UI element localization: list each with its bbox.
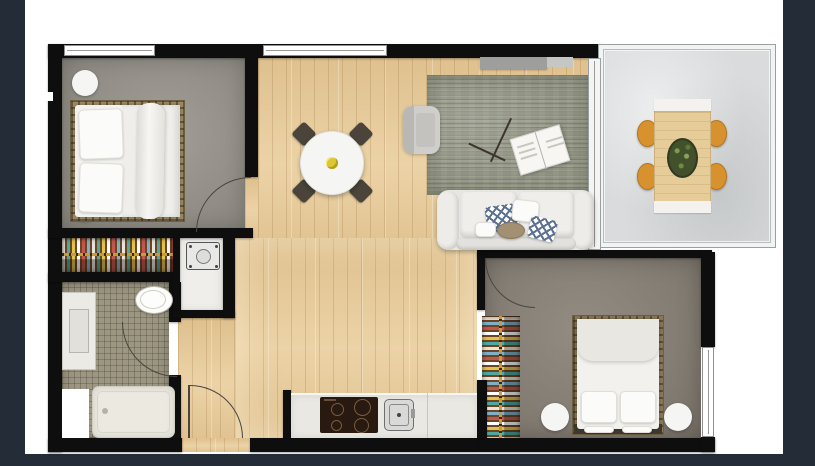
magazine-text-line [517,142,534,149]
wall-bedroom2-west-upper [477,252,485,310]
floor-plan [0,0,815,466]
bathtub-drain [102,408,108,414]
vanity-sink [69,309,89,353]
tv-console [480,57,547,69]
wall-bedroom2-north [477,250,712,258]
bedroom1-window [64,45,155,56]
washer-drum [196,249,211,264]
wall-bedroom2-east-upper [701,252,715,347]
armchair-back [403,106,414,154]
outdoor-bench-bottom [654,201,711,213]
wall-bottom-right [479,438,715,452]
wall-laundry-west [173,237,180,310]
window-pane-line [708,350,709,434]
wall-joint-notch [46,92,53,101]
bedroom2-pillow-right [620,391,656,423]
sink-drain [397,413,401,417]
wall-bedroom2-east-lower [701,437,715,452]
bathroom-niche [62,389,89,438]
pouf-tray [497,222,525,239]
media-shelf [547,57,573,67]
burner [331,420,342,431]
toilet-seat [140,290,166,309]
burner [331,403,344,416]
faucet [411,409,415,418]
armchair-seat [416,113,435,147]
magazine-spine [535,132,547,169]
wall-bottom-mid [250,438,479,452]
bedroom2-pillow-left [581,391,617,423]
bedroom1-pillow-bottom [78,162,124,214]
cooktop [320,397,378,433]
washer-corner-bolt [189,245,192,248]
entry-threshold [182,438,250,452]
bedroom2-pillow-edge [622,426,652,433]
bedroom2-window [702,347,714,437]
wall-bedroom2-west-lower [477,380,487,438]
bedroom2-side-table-left [541,403,569,431]
bedroom1-side-table-top [72,70,98,96]
bedroom2-side-table-right [664,403,692,431]
cooktop-controls [324,399,336,401]
throw-pillow [475,222,496,237]
bathtub-inner [97,391,170,433]
wall-kitchen-stub [283,390,291,438]
kitchen-sink [384,399,414,431]
bedroom1-pillow-top [78,108,124,160]
wall-bedroom1-east [245,58,258,177]
bedroom2-duvet-fold [577,319,659,361]
armchair [403,106,440,154]
bedroom2-pillow-edge [584,426,614,433]
burner [354,418,369,433]
bedroom2-wardrobe-rail [499,316,502,440]
burner [354,399,371,416]
bedroom1-blanket-drape [135,103,165,219]
dining-window [263,45,387,56]
living-room-rug [427,75,588,195]
outdoor-bench-top [654,99,711,111]
wall-laundry-east [223,237,235,318]
counter-seam [427,393,428,438]
wall-bottom-left [48,438,182,452]
sofa-backrest [456,237,576,250]
flower-centerpiece [326,157,338,169]
wall-laundry-south [173,310,235,318]
window-pane-line [266,50,384,51]
sliding-door-track [594,61,595,247]
washing-machine [186,242,220,270]
bedroom1-wardrobe-rail [62,253,173,256]
plant-centerpiece [667,138,698,178]
wall-left [48,44,62,452]
window-pane-line [67,50,152,51]
wall-bathroom-north [48,272,175,282]
